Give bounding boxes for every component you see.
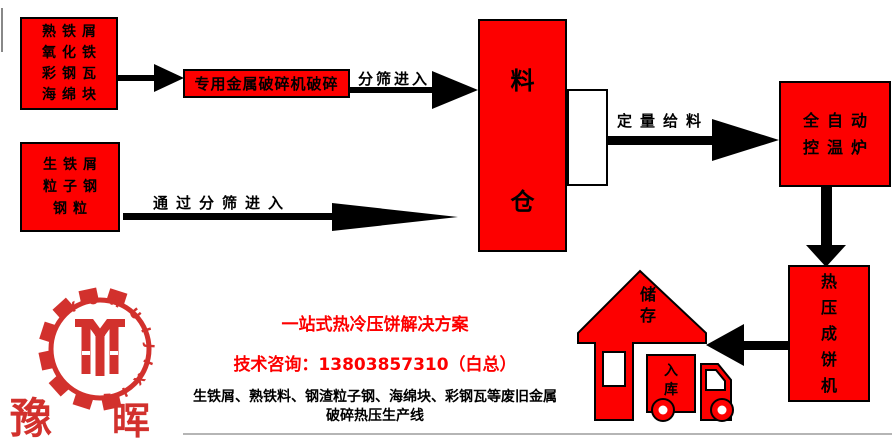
bottom-rule: [183, 433, 892, 435]
truck-wheel-hub: [659, 406, 668, 415]
warehouse-label: 入 库: [653, 362, 689, 400]
material-line: 熟铁屑: [42, 22, 102, 43]
storage-char: 储: [629, 284, 667, 305]
crusher-box: 专用金属破碎机破碎: [183, 69, 350, 98]
quantitative-feed-label: 定量给料: [612, 110, 714, 131]
material-line: 生铁屑: [43, 154, 103, 176]
press-char: 机: [821, 373, 837, 399]
material-line: 彩钢瓦: [42, 64, 102, 85]
silo-char: 仓: [511, 182, 535, 217]
furnace-line: 控温炉: [803, 134, 875, 161]
company-logo-gear-icon: YUHUIJIXIE: [38, 287, 156, 410]
warehouse-char: 入: [653, 362, 689, 381]
furnace-box: 全自动 控温炉: [779, 81, 891, 187]
arrow-press-to-truck: [706, 324, 788, 366]
arrow-furnace-to-press: [806, 187, 846, 267]
material-line: 粒子钢: [43, 176, 103, 198]
furnace-line: 全自动: [803, 107, 875, 134]
edge-artifact-line: [1, 8, 3, 52]
arrow-materials-to-crusher: [118, 64, 184, 92]
storage-char: 存: [629, 305, 667, 326]
material-line: 钢粒: [53, 198, 93, 220]
press-char: 压: [821, 295, 837, 321]
promo-production-line: 破碎热压生产线: [178, 405, 572, 425]
flowchart-canvas: YUHUIJIXIE 熟铁屑 氧化铁 彩钢瓦 海绵块 生铁屑 粒子钢 钢粒 专用…: [0, 0, 892, 441]
crusher-label: 专用金属破碎机破碎: [194, 73, 338, 94]
press-char: 热: [821, 269, 837, 295]
storage-label: 储 存: [629, 284, 667, 326]
sieve-entry-label: 分筛进入: [351, 68, 437, 89]
promo-contact: 技术咨询：13803857310（白总）: [185, 350, 565, 375]
silo-box: 料 仓: [478, 19, 567, 252]
truck-wheel-hub: [718, 406, 727, 415]
press-char: 成: [821, 321, 837, 347]
logo-ym-monogram: [75, 323, 125, 376]
materials-top-box: 熟铁屑 氧化铁 彩钢瓦 海绵块: [20, 17, 118, 110]
press-char: 饼: [821, 347, 837, 373]
material-line: 氧化铁: [42, 43, 102, 64]
brand-char-hui: 晖: [112, 402, 150, 440]
logo-notch: [110, 351, 118, 355]
material-line: 海绵块: [42, 85, 102, 106]
through-sieve-label: 通过分筛进入: [148, 192, 296, 213]
promo-materials-list: 生铁屑、熟铁料、钢渣粒子钢、海绵块、彩钢瓦等废旧金属: [178, 386, 572, 406]
silo-char: 料: [511, 61, 535, 96]
logo-notch: [82, 351, 90, 355]
brand-char-yu: 豫: [10, 398, 52, 440]
house-door: [603, 352, 625, 386]
warehouse-char: 库: [653, 381, 689, 400]
press-box: 热 压 成 饼 机: [788, 265, 870, 402]
materials-bottom-box: 生铁屑 粒子钢 钢粒: [20, 142, 120, 232]
feeder-rect: [567, 89, 608, 186]
promo-slogan: 一站式热冷压饼解决方案: [185, 310, 565, 335]
